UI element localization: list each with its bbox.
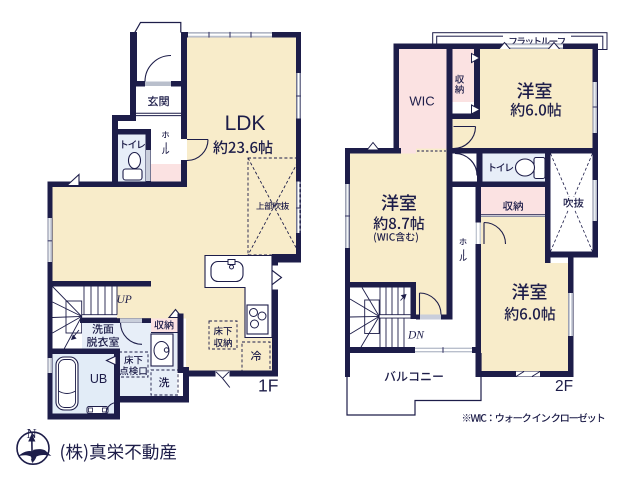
svg-text:UP: UP — [117, 294, 132, 306]
svg-text:LDK: LDK — [225, 112, 266, 135]
svg-text:2F: 2F — [555, 378, 573, 395]
svg-text:DN: DN — [407, 330, 425, 342]
svg-text:UB: UB — [90, 372, 107, 386]
svg-text:1F: 1F — [258, 376, 278, 396]
svg-text:N: N — [26, 427, 36, 442]
svg-text:WIC: WIC — [409, 94, 434, 109]
